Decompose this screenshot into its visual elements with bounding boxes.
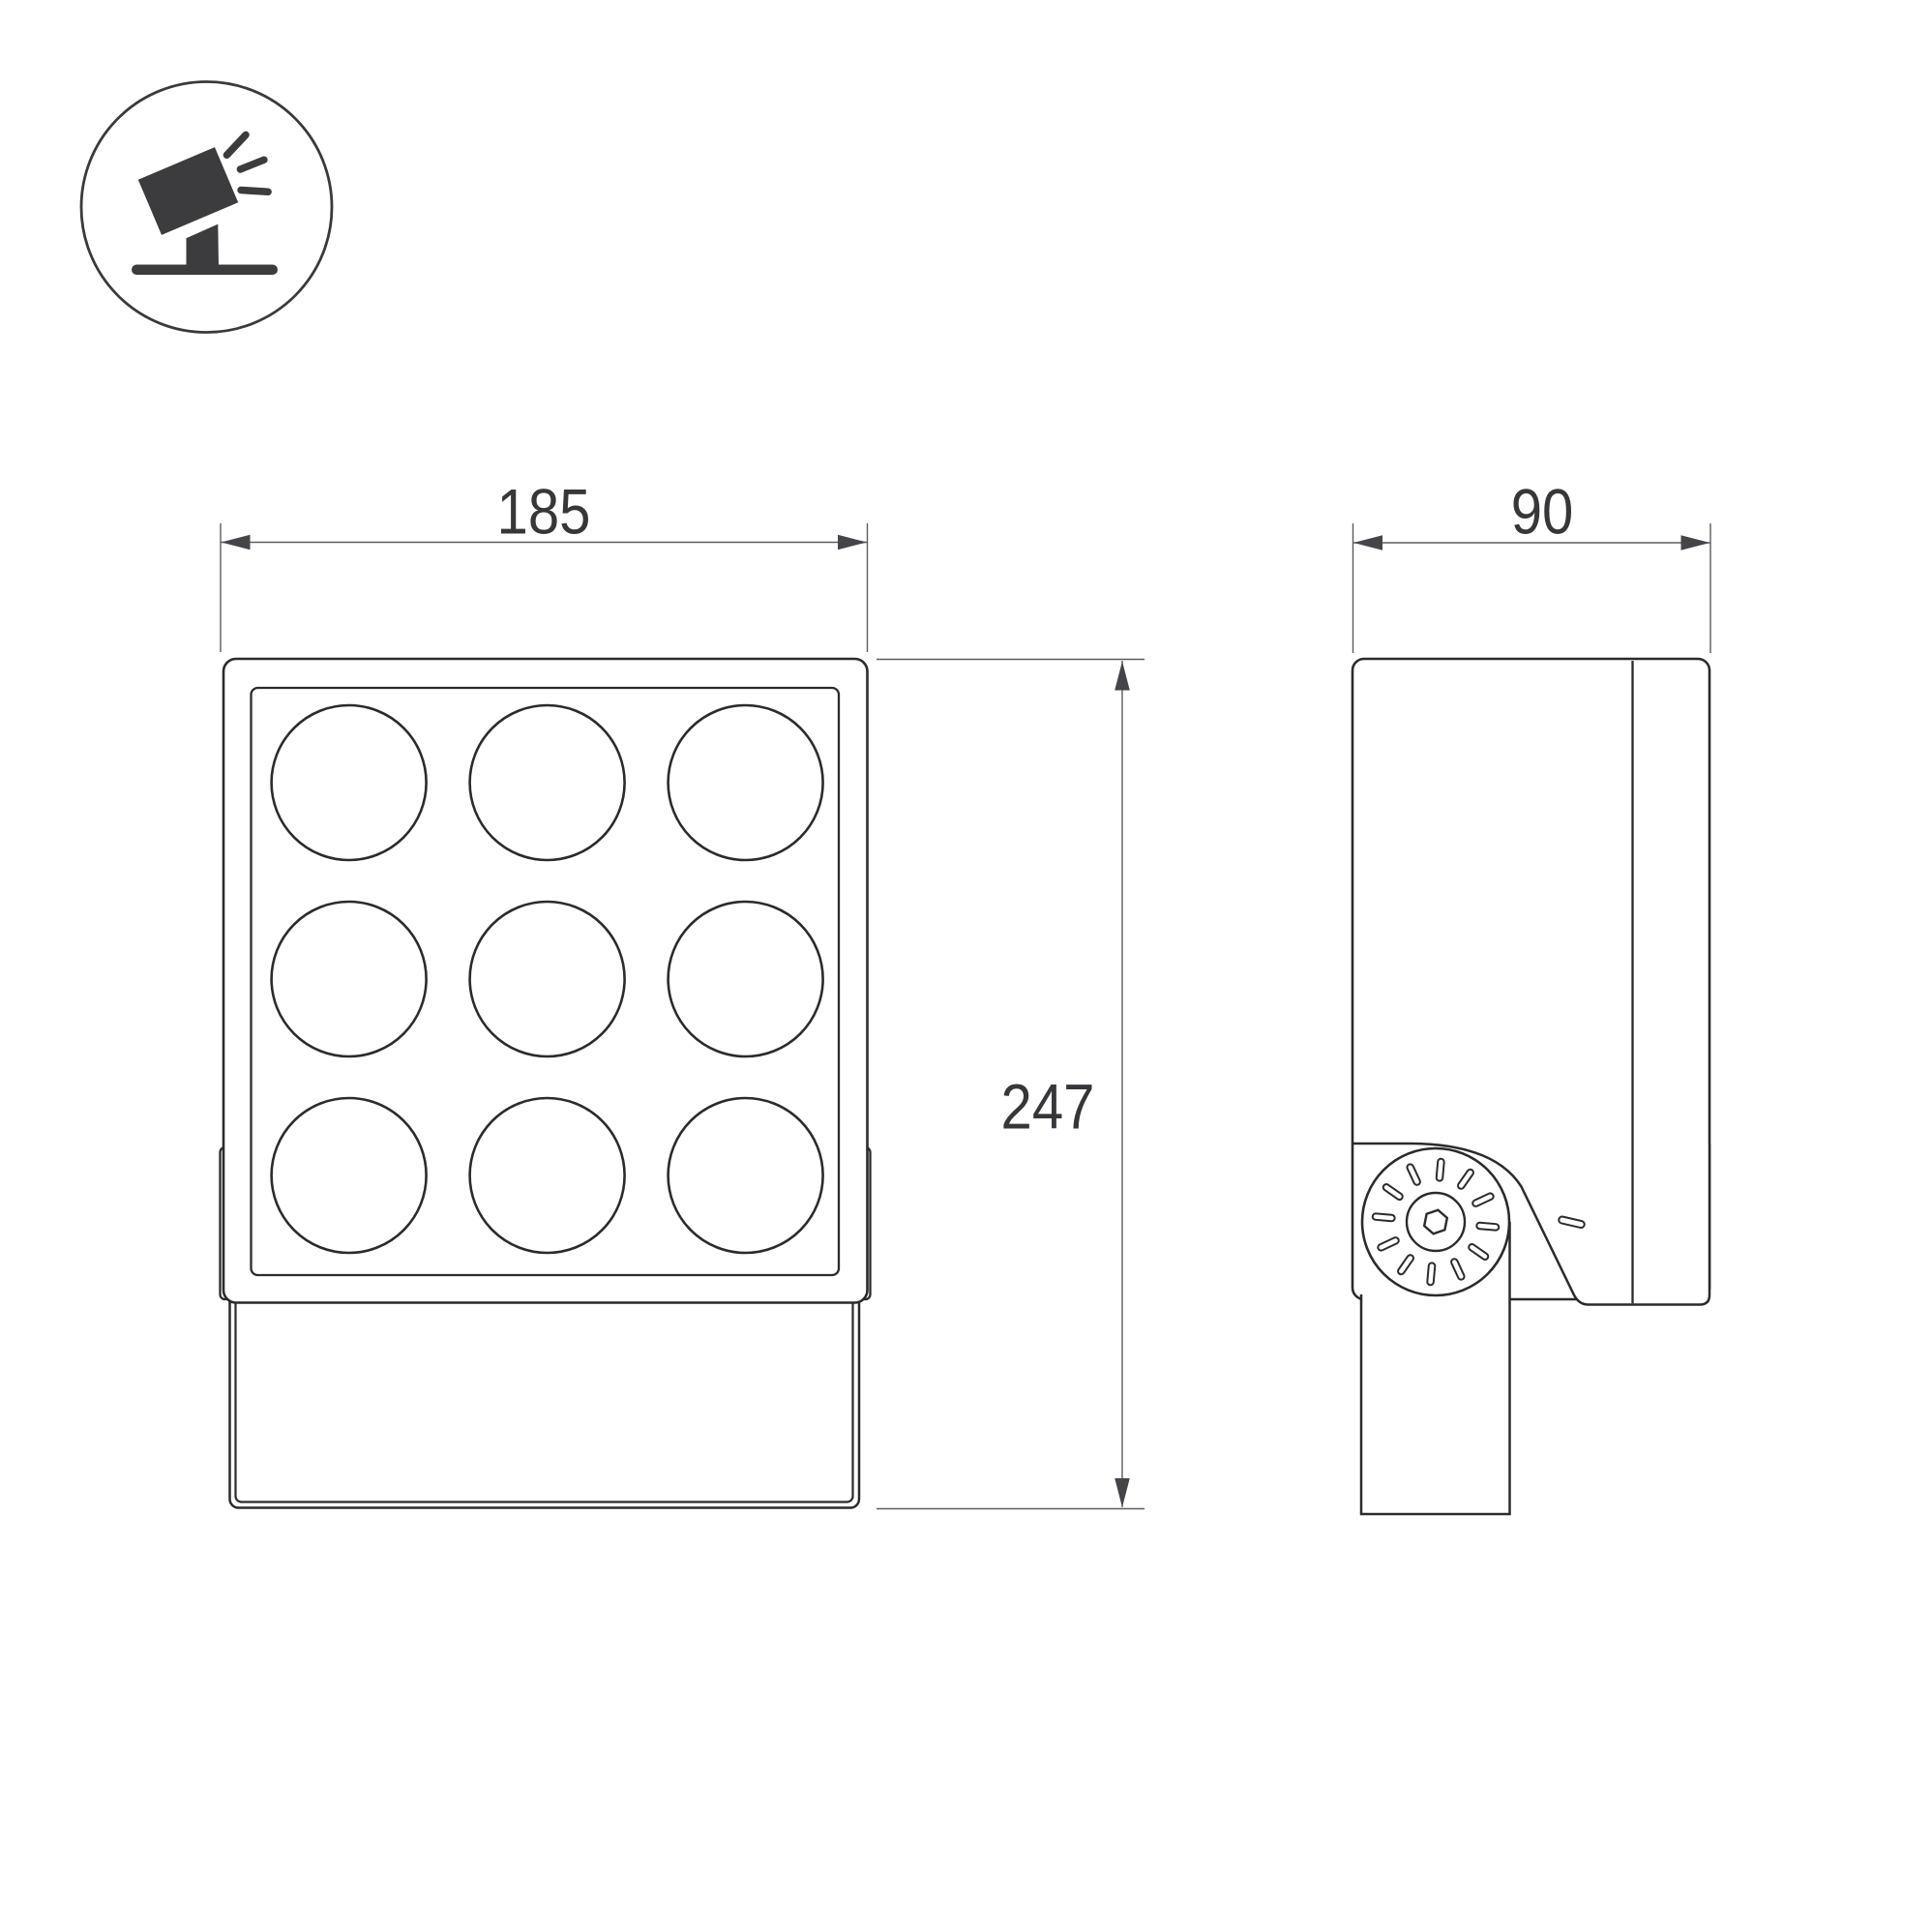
svg-text:185: 185	[497, 477, 591, 548]
svg-text:247: 247	[1001, 1072, 1095, 1143]
svg-text:90: 90	[1511, 477, 1574, 548]
